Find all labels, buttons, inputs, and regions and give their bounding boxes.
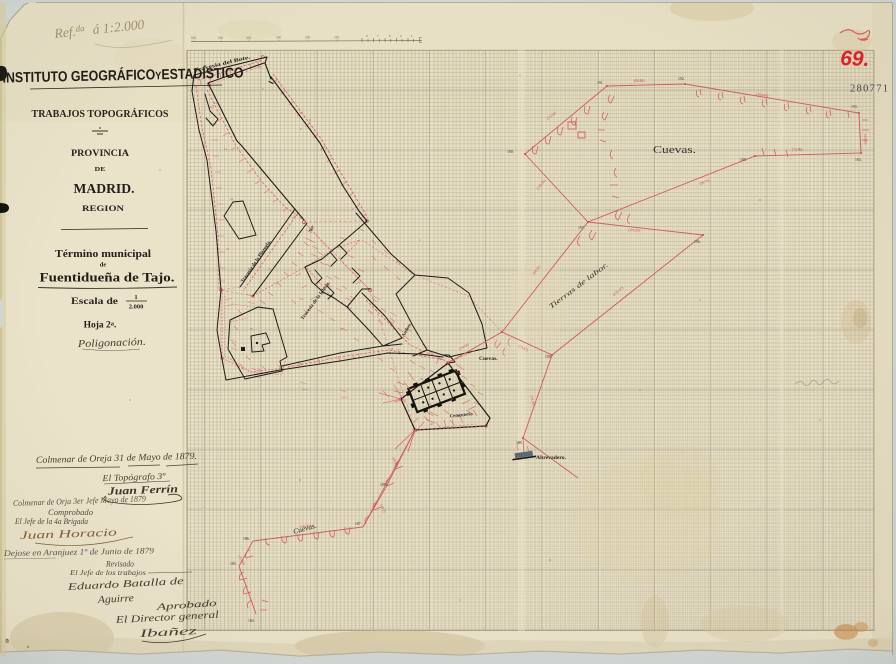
svg-text:280771: 280771 [850, 84, 889, 95]
svg-text:196.: 196. [694, 240, 701, 244]
svg-text:28: 28 [390, 347, 394, 351]
svg-text:14: 14 [224, 147, 228, 151]
svg-text:Abrevadero.: Abrevadero. [536, 456, 567, 461]
svg-text:188.: 188. [380, 483, 387, 487]
svg-text:40: 40 [430, 422, 434, 426]
svg-text:2.000: 2.000 [129, 304, 144, 311]
svg-text:22: 22 [268, 267, 272, 271]
svg-text:MADRID.: MADRID. [74, 181, 135, 196]
svg-text:32: 32 [300, 362, 304, 366]
svg-text:186.: 186. [243, 537, 250, 541]
svg-text:PROVINCIA: PROVINCIA [71, 149, 129, 159]
svg-text:Fuentidueña de Tajo.: Fuentidueña de Tajo. [40, 271, 175, 285]
svg-text:190.: 190. [507, 150, 514, 154]
svg-text:18: 18 [226, 247, 230, 251]
svg-text:30: 30 [250, 327, 254, 331]
svg-text:195.: 195. [740, 158, 747, 162]
svg-text:Comprobado: Comprobado [48, 508, 93, 517]
svg-text:Aguirre: Aguirre [96, 593, 134, 606]
svg-text:Escala de: Escala de [71, 296, 118, 306]
svg-text:(43.86): (43.86) [863, 134, 868, 145]
svg-text:REGION: REGION [82, 204, 124, 213]
svg-text:194.: 194. [855, 158, 862, 162]
svg-text:El Jefe de la 4a Brigada: El Jefe de la 4a Brigada [14, 517, 88, 526]
svg-text:400: 400 [246, 36, 252, 40]
svg-text:DE: DE [95, 166, 106, 173]
svg-text:TRABAJOS TOPOGRÁFICOS: TRABAJOS TOPOGRÁFICOS [32, 108, 169, 120]
svg-text:24: 24 [300, 297, 304, 301]
svg-text:El Jefe de los trabajos: El Jefe de los trabajos [69, 568, 146, 577]
svg-text:197.: 197. [578, 226, 585, 230]
svg-text:26: 26 [340, 327, 344, 331]
svg-text:199.: 199. [516, 441, 523, 445]
svg-text:(84.66): (84.66) [634, 79, 645, 83]
svg-text:12: 12 [214, 101, 218, 105]
svg-text:de: de [100, 262, 107, 269]
svg-text:69.: 69. [840, 47, 870, 71]
svg-text:16: 16 [230, 197, 234, 201]
svg-text:185.: 185. [230, 562, 237, 566]
svg-text:500: 500 [218, 36, 224, 40]
svg-text:200: 200 [305, 36, 311, 40]
svg-text:Cuevas.: Cuevas. [653, 145, 696, 156]
svg-text:36: 36 [420, 377, 424, 381]
svg-text:184.: 184. [248, 619, 255, 623]
svg-text:1: 1 [134, 294, 137, 301]
svg-text:Término municipal: Término municipal [55, 248, 151, 260]
svg-text:100: 100 [334, 36, 340, 40]
svg-text:38: 38 [450, 397, 454, 401]
svg-text:600: 600 [191, 36, 197, 40]
svg-text:34: 34 [352, 355, 356, 359]
svg-text:187.: 187. [355, 522, 362, 526]
svg-text:192.: 192. [678, 77, 685, 81]
svg-text:198.: 198. [545, 355, 552, 359]
svg-text:300: 300 [276, 36, 282, 40]
svg-text:193.: 193. [851, 105, 858, 109]
svg-text:(73.86): (73.86) [792, 148, 803, 152]
svg-text:Cuevas.: Cuevas. [479, 356, 498, 362]
svg-text:191.: 191. [597, 81, 604, 85]
